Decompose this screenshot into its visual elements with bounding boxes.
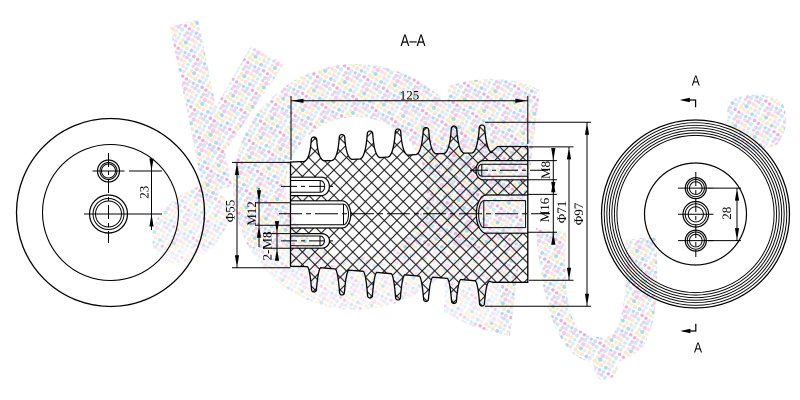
svg-text:M8: M8 xyxy=(538,161,553,179)
svg-text:23: 23 xyxy=(137,186,152,199)
svg-text:Φ71: Φ71 xyxy=(554,201,569,224)
svg-text:A: A xyxy=(694,341,702,357)
svg-text:M16: M16 xyxy=(537,197,552,222)
svg-text:A–A: A–A xyxy=(401,31,427,50)
svg-text:Φ97: Φ97 xyxy=(571,202,586,225)
svg-text:A: A xyxy=(692,74,700,90)
svg-text:Φ55: Φ55 xyxy=(223,200,238,223)
svg-text:28: 28 xyxy=(719,207,734,220)
svg-text:125: 125 xyxy=(400,88,420,103)
svg-text:2-M8: 2-M8 xyxy=(260,232,275,261)
svg-text:M12: M12 xyxy=(244,201,259,226)
